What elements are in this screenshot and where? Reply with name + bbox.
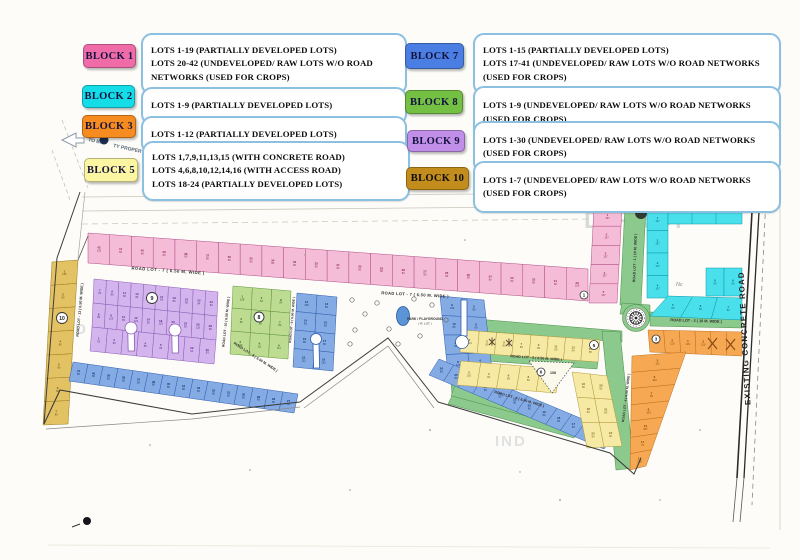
- legend-line: LOTS 1-7 (UNDEVELOPED/ RAW LOTS W/O ROAD…: [483, 174, 771, 188]
- lot-area: 137: [605, 216, 610, 220]
- lot-area: 157: [602, 274, 607, 278]
- legend-chip-block-1: BLOCK 1: [83, 44, 136, 68]
- circled-5: 5: [593, 343, 596, 349]
- legend-chip-block-3: BLOCK 3: [82, 115, 136, 138]
- legend-line: (USED FOR CROPS): [483, 147, 771, 161]
- lot-area: 157: [655, 264, 660, 268]
- lot-strip-b10_col: 1126280380480580680780: [43, 260, 78, 425]
- road-lot-10-label: ROAD LOT - 10 ( 6.50 M. WIDE ): [221, 296, 230, 347]
- legend-line: LOTS 17-41 (UNDEVELOPED/ RAW LOTS W/O RO…: [483, 57, 771, 71]
- lot-area: 112: [655, 362, 660, 366]
- legend-chip-block-10: BLOCK 10: [406, 167, 469, 190]
- lot-area: 123: [109, 316, 114, 320]
- legend-line: LOTS 1-15 (PARTIALLY DEVELOPED LOTS): [483, 44, 771, 58]
- svg-text:IND: IND: [495, 433, 527, 450]
- lot-area: 123: [159, 322, 164, 326]
- legend-chip-label: BLOCK 3: [85, 121, 133, 132]
- lot-area: 125: [196, 326, 201, 330]
- lot-area: 157: [655, 241, 660, 245]
- lot-area: 110: [670, 341, 675, 345]
- lot-area: 108: [240, 297, 245, 301]
- legend-desc-block-5: LOTS 1,7,9,11,13,15 (WITH CONCRETE ROAD)…: [142, 141, 410, 201]
- road-stub-a: [313, 344, 320, 368]
- road-stub-b: [461, 300, 467, 336]
- legend-line: LOTS 4,6,8,10,12,14,16 (WITH ACCESS ROAD…: [152, 164, 400, 178]
- open-space-area: 108: [550, 371, 556, 375]
- existing-concrete-road: EXISTING CONCRETE ROAD: [733, 194, 766, 522]
- legend-line: LOTS 1-9 (PARTIALLY DEVELOPED LOTS): [151, 99, 397, 113]
- legend-chip-block-8: BLOCK 8: [405, 90, 463, 114]
- legend-line: (USED FOR CROPS): [483, 71, 771, 85]
- road-stub-11: [128, 333, 135, 351]
- legend-line: LOTS 1,7,9,11,13,15 (WITH CONCRETE ROAD): [152, 151, 400, 165]
- lot-strip-b2_bot: 580680780: [650, 296, 742, 320]
- lot-area: 110: [701, 342, 706, 346]
- legend-desc-block-1: LOTS 1-19 (PARTIALLY DEVELOPED LOTS) LOT…: [141, 33, 407, 95]
- lot-area: 157: [604, 235, 609, 239]
- lot-area: 106: [304, 303, 309, 307]
- lot-area: 126: [62, 272, 67, 276]
- lot-area: 103: [652, 378, 657, 382]
- circled-10: 10: [59, 316, 65, 322]
- lot-area: 157: [601, 293, 606, 297]
- circled-9: 9: [151, 296, 154, 302]
- park-area: PARK / PLAYGROUND ( R. LOT ): [348, 297, 448, 346]
- cul-de-sac-bulb: [125, 322, 137, 334]
- park-label: PARK / PLAYGROUND: [407, 317, 444, 321]
- legend-chip-block-2: BLOCK 2: [82, 85, 135, 108]
- legend-chip-label: BLOCK 10: [411, 173, 464, 184]
- legend-line: LOTS 1-30 (UNDEVELOPED/ RAW LOTS W/O ROA…: [483, 134, 771, 148]
- cul-de-sac-bulb: [169, 324, 181, 336]
- lot-strip-b3_col: 51126103781810310207117312218: [630, 352, 686, 470]
- lot-area: 207: [643, 427, 648, 431]
- lot-strip-b3_row: 1110211041033110: [648, 330, 742, 356]
- lot-strip-b2_left: 1157215731574157: [647, 208, 668, 298]
- legend-chip-block-5: BLOCK 5: [84, 158, 138, 182]
- legend-chip-label: BLOCK 8: [410, 97, 458, 108]
- legend-chip-label: BLOCK 7: [411, 51, 459, 62]
- lot-area: 103: [646, 411, 651, 415]
- legend-chip-label: BLOCK 9: [412, 136, 460, 147]
- legend-line: LOTS 18-24 (PARTIALLY DEVELOPED LOTS): [152, 178, 400, 192]
- roundabout: [623, 305, 650, 332]
- legend-desc-block-10: LOTS 1-7 (UNDEVELOPED/ RAW LOTS W/O ROAD…: [473, 161, 781, 213]
- lot-strip-b1_side: 11372157315741575157: [589, 207, 622, 303]
- scanned-subdivision-plan: { "legend": { "left": [ {"id":"block-1",…: [0, 0, 800, 560]
- legend-line: LOTS 1-12 (PARTIALLY DEVELOPED LOTS): [151, 128, 397, 142]
- lot-area: 123: [134, 319, 139, 323]
- lot-area: 111: [258, 345, 262, 349]
- legend-line: LOTS 1-9 (UNDEVELOPED/ RAW LOTS W/O ROAD…: [483, 99, 771, 113]
- lot-area: 105: [575, 284, 580, 288]
- lot-area: 157: [655, 219, 660, 223]
- cul-de-sac-bulb: [311, 334, 322, 345]
- lot-area: 111: [277, 346, 281, 350]
- legend-chip-label: BLOCK 1: [86, 51, 134, 62]
- legend-chip-block-7: BLOCK 7: [405, 43, 464, 69]
- lot-area: 122: [301, 358, 306, 362]
- legend-chip-block-9: BLOCK 9: [407, 130, 465, 152]
- legend-line: LOTS 20-42 (UNDEVELOPED/ RAW LOTS W/O RO…: [151, 57, 397, 71]
- direction-arrow-icon: [62, 133, 84, 147]
- legend-line: (USED FOR CROPS): [483, 187, 771, 201]
- lot-area: 103: [686, 342, 691, 346]
- circled-8: 8: [258, 315, 261, 321]
- to-proper-label-b: TY PROPER: [113, 143, 143, 155]
- legend-chip-label: BLOCK 5: [87, 165, 135, 176]
- park-sublabel: ( R. LOT ): [418, 322, 431, 326]
- road-stub-12: [172, 335, 179, 353]
- lot-area: 120: [467, 373, 472, 377]
- lot-strip-b7_bl: 4180408039803880378036803580348033803280…: [69, 362, 298, 413]
- nc-scribble: Nc: [676, 282, 683, 288]
- legend-chip-label: BLOCK 2: [85, 91, 133, 102]
- park-pool: [397, 307, 410, 326]
- legend-line: NETWORKS (USED FOR CROPS): [151, 71, 397, 85]
- lot-area: 135: [97, 248, 102, 252]
- circled-6: 6: [540, 370, 543, 375]
- lot-area: 132: [321, 360, 326, 364]
- lot-area: 157: [655, 286, 660, 290]
- lot-area: 106: [450, 306, 455, 310]
- legend-line: LOTS 1-19 (PARTIALLY DEVELOPED LOTS): [151, 44, 397, 58]
- lot-area: 157: [603, 255, 608, 259]
- cul-de-sac-bulb: [456, 336, 469, 349]
